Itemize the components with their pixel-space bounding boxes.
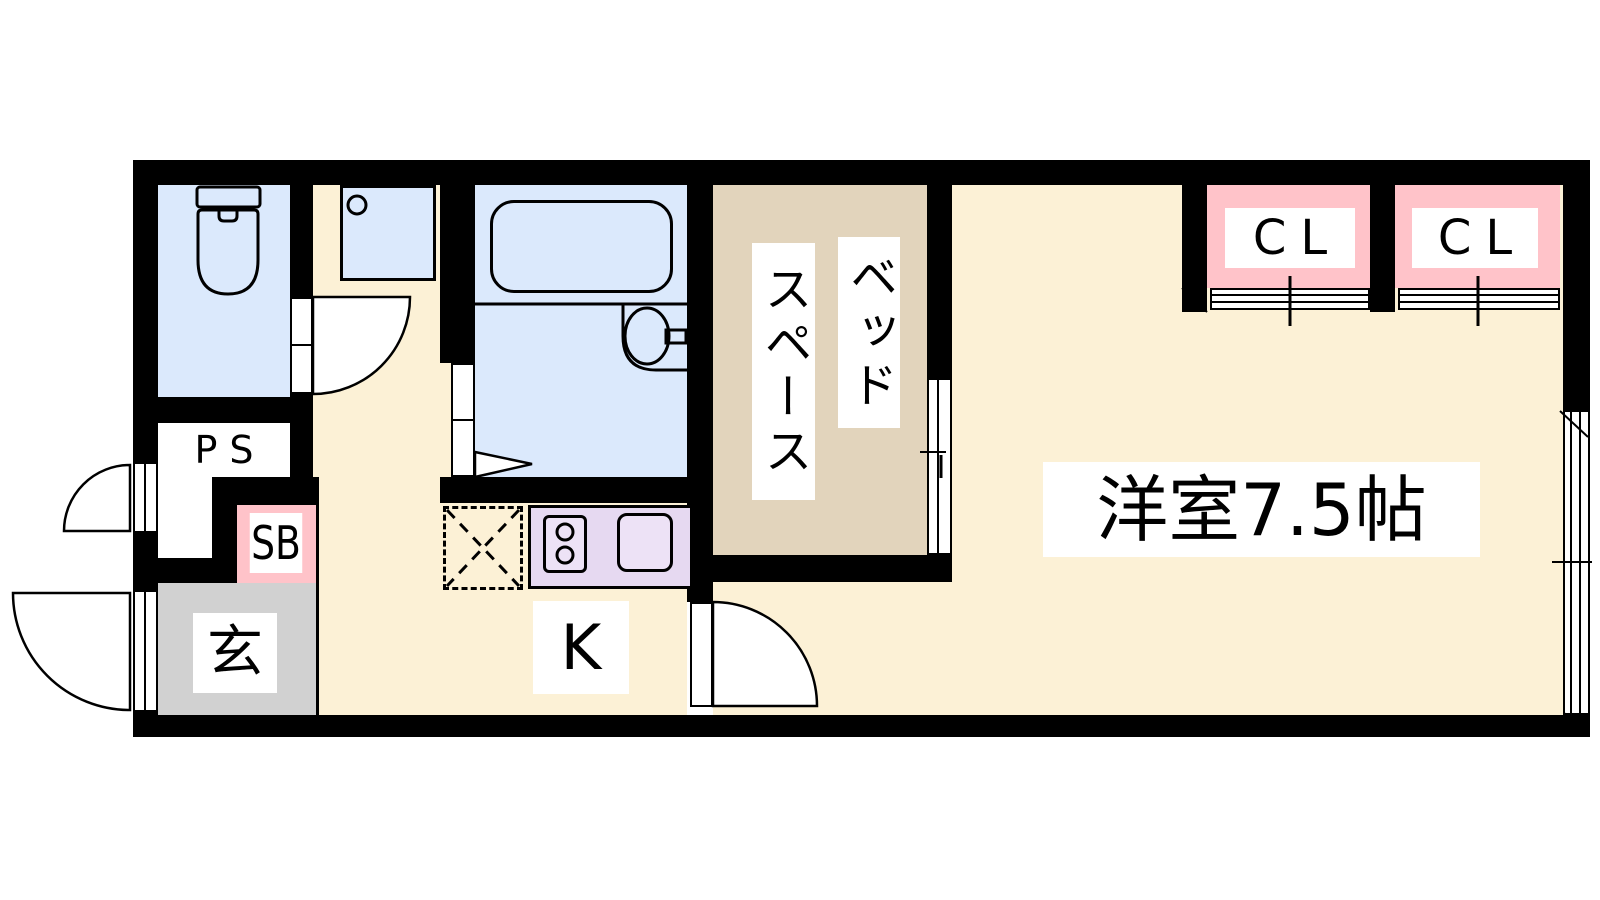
wall-ps-low <box>158 558 212 583</box>
entrance-door-upper-swing <box>64 465 130 531</box>
entrance-door-opening-lower <box>133 590 158 712</box>
wall-toilet-bottom <box>133 397 313 423</box>
label-pipe-space: PS <box>158 425 290 475</box>
label-kitchen: K <box>533 601 629 694</box>
wall-sb-left <box>212 505 237 583</box>
sink <box>617 513 673 572</box>
toilet-door-opening <box>290 297 313 394</box>
label-entrance: 玄 <box>193 613 277 693</box>
wall-bottom <box>133 715 1590 737</box>
floor-plan: PS SB 玄 K ベッド スペース 洋室7.5帖 CL CL <box>0 0 1600 900</box>
label-western-room: 洋室7.5帖 <box>1043 462 1480 557</box>
refrigerator-space <box>443 506 523 590</box>
toilet-room-floor <box>158 185 290 397</box>
kitchen-door-opening <box>690 602 713 707</box>
label-bed-space-col2: スペース <box>752 243 815 500</box>
wall-closet-pillar-left <box>1182 185 1207 312</box>
label-closet-right: CL <box>1412 208 1538 268</box>
label-bed-space-col1: ベッド <box>838 237 900 428</box>
bed-space-sliding-door <box>927 378 952 555</box>
label-closet-left: CL <box>1225 208 1355 268</box>
wall-bath-bottom <box>440 477 713 503</box>
wall-ps-band <box>212 477 319 505</box>
entrance-door-opening-upper <box>133 462 158 533</box>
label-shoe-box: SB <box>250 513 302 573</box>
bathroom-door-opening <box>451 363 475 477</box>
closet-right-sliding-door <box>1398 288 1560 310</box>
wall-bed-bottom <box>687 555 952 582</box>
washing-machine-pan <box>340 185 436 281</box>
bathtub <box>490 200 673 293</box>
wall-bath-left <box>440 185 475 363</box>
wall-entrance-divider <box>316 505 319 715</box>
main-room-floor-lower <box>713 582 952 715</box>
closet-left-sliding-door <box>1210 288 1370 310</box>
entrance-door-lower-swing <box>13 593 130 710</box>
stove <box>543 515 587 573</box>
wall-closet-pillar-mid <box>1370 185 1395 312</box>
wall-top <box>133 160 1590 185</box>
window-right <box>1563 410 1590 715</box>
